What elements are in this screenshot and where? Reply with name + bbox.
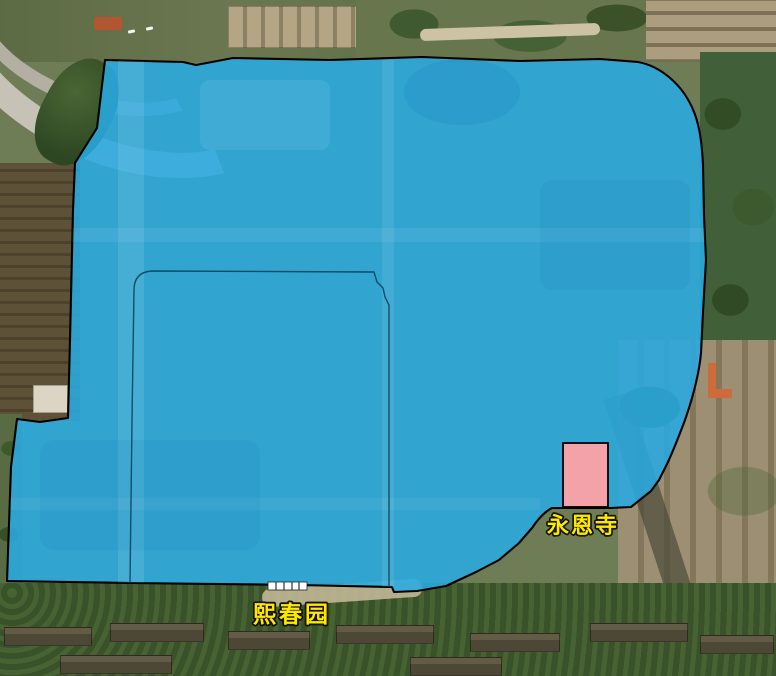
stadium-field (404, 59, 520, 125)
building-footprint-marker (268, 582, 307, 590)
texture-patch (540, 180, 690, 290)
label-xichun-garden: 熙春园 (253, 602, 331, 627)
texture-patch (382, 60, 394, 590)
map-canvas[interactable]: 永恩寺 熙春园 (0, 0, 776, 676)
footprint-base (268, 582, 307, 590)
texture-patch (40, 440, 260, 550)
annotation-layer: 永恩寺 熙春园 (0, 0, 776, 676)
temple-block-rect[interactable] (563, 443, 608, 507)
label-yongen-temple: 永恩寺 (547, 513, 619, 538)
texture-patch (200, 80, 330, 150)
